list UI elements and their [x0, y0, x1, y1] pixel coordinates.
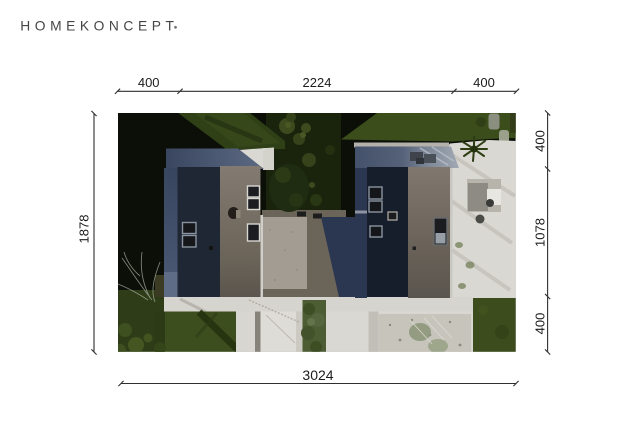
svg-text:1078: 1078 — [533, 218, 548, 247]
svg-text:2224: 2224 — [303, 75, 332, 90]
svg-text:1878: 1878 — [77, 215, 92, 244]
svg-text:400: 400 — [473, 75, 495, 90]
svg-text:400: 400 — [138, 75, 160, 90]
svg-text:3024: 3024 — [302, 367, 333, 383]
svg-text:400: 400 — [533, 313, 548, 335]
svg-text:HOMEKONCEPT: HOMEKONCEPT — [20, 18, 178, 33]
svg-text:400: 400 — [533, 130, 548, 152]
